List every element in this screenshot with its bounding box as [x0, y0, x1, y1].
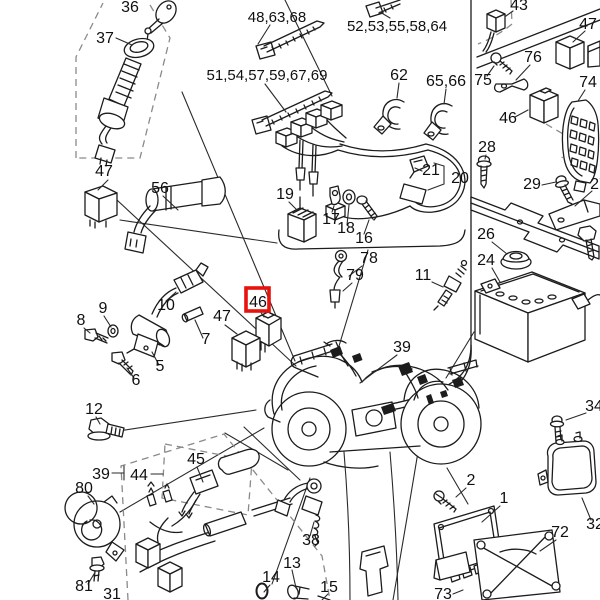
part-sketch-main-switch-37 — [95, 36, 156, 166]
callout-65-66[interactable]: 65,66 — [426, 73, 466, 90]
part-sketch-bracket-72 — [474, 530, 560, 600]
callout-29[interactable]: 29 — [523, 176, 541, 193]
part-sketch-battery-24 — [475, 272, 600, 362]
part-sketch-starter-coil-56 — [125, 177, 225, 253]
callout-46[interactable]: 46 — [249, 294, 267, 311]
callout-78[interactable]: 78 — [360, 250, 378, 267]
callout-31[interactable]: 31 — [103, 586, 121, 600]
callout-12[interactable]: 12 — [85, 401, 103, 418]
callout-48-63-68[interactable]: 48,63,68 — [248, 9, 306, 26]
part-sketch-wire-harness — [276, 101, 465, 220]
callout-76[interactable]: 76 — [524, 49, 542, 66]
part-sketch-bracket-17 — [330, 186, 340, 205]
callout-51-54-57-59-67-69[interactable]: 51,54,57,59,67,69 — [207, 67, 328, 84]
callout-37[interactable]: 37 — [96, 30, 114, 47]
callout-26[interactable]: 26 — [477, 226, 495, 243]
callout-47[interactable]: 47 — [95, 163, 113, 180]
callout-6[interactable]: 6 — [132, 372, 141, 389]
callout-56[interactable]: 56 — [151, 180, 169, 197]
callout-62[interactable]: 62 — [390, 67, 408, 84]
callout-36[interactable]: 36 — [121, 0, 139, 16]
callout-45[interactable]: 45 — [187, 451, 205, 468]
part-sketch-bolt-16 — [357, 196, 377, 220]
part-sketch-clamp-65-66 — [424, 104, 452, 140]
diagram-svg: 3637475648,63,6851,54,57,59,67,6952,53,5… — [0, 0, 600, 600]
callout-32[interactable]: 32 — [586, 516, 600, 533]
callout-21[interactable]: 21 — [422, 162, 440, 179]
part-sketch-plug-cap-10 — [174, 263, 208, 293]
part-sketch-washer-18 — [343, 190, 355, 204]
callout-16[interactable]: 16 — [355, 230, 373, 247]
parts-diagram-canvas: 3637475648,63,6851,54,57,59,67,6952,53,5… — [0, 0, 600, 600]
callout-2[interactable]: 2 — [467, 472, 476, 489]
callout-27[interactable]: 27 — [590, 176, 600, 193]
part-sketch-collar-7 — [181, 307, 203, 323]
part-sketch-starter-relay-32 — [538, 432, 596, 495]
part-sketch-grommet-26 — [501, 252, 531, 270]
part-sketch-clamp-62 — [374, 100, 404, 134]
callout-13[interactable]: 13 — [283, 555, 301, 572]
part-sketch-screw-2 — [434, 491, 456, 512]
callout-46[interactable]: 46 — [499, 110, 517, 127]
callout-74[interactable]: 74 — [579, 74, 597, 91]
part-sketch-relay-47-mid — [232, 331, 260, 371]
callout-47[interactable]: 47 — [213, 308, 231, 325]
callout-24[interactable]: 24 — [477, 252, 495, 269]
callout-20[interactable]: 20 — [451, 170, 469, 187]
part-sketch-bracket-76 — [495, 79, 528, 92]
part-sketch-connector-19 — [288, 197, 316, 242]
callout-39[interactable]: 39 — [393, 339, 411, 356]
atv-illustration — [265, 340, 481, 468]
part-sketch-relay-47-right — [556, 36, 600, 69]
callout-43[interactable]: 43 — [510, 0, 528, 14]
part-sketch-bolt-12 — [88, 418, 124, 440]
callout-14[interactable]: 14 — [262, 569, 280, 586]
callout-79[interactable]: 79 — [346, 267, 364, 284]
part-sketch-screw-29 — [555, 175, 573, 204]
callout-75[interactable]: 75 — [474, 72, 492, 89]
callout-38[interactable]: 38 — [302, 532, 320, 549]
callout-47[interactable]: 47 — [579, 16, 597, 33]
part-sketch-lead-wire-78-79 — [330, 251, 347, 309]
part-sketch-washer-9 — [108, 325, 118, 337]
callout-8[interactable]: 8 — [77, 312, 86, 329]
callout-19[interactable]: 19 — [276, 186, 294, 203]
callout-7[interactable]: 7 — [202, 331, 211, 348]
part-sketch-cable-tie-48-63-68 — [256, 21, 324, 59]
callout-9[interactable]: 9 — [99, 300, 108, 317]
part-sketch-relay-47-left — [85, 186, 117, 228]
callout-10[interactable]: 10 — [157, 297, 175, 314]
callout-18[interactable]: 18 — [337, 220, 355, 237]
callout-81[interactable]: 81 — [75, 578, 93, 595]
callout-44[interactable]: 44 — [130, 467, 148, 484]
callout-72[interactable]: 72 — [551, 524, 569, 541]
callout-5[interactable]: 5 — [156, 358, 165, 375]
part-sketch-cable-tie-52-group — [366, 0, 400, 17]
callout-73[interactable]: 73 — [434, 586, 452, 600]
part-sketch-horn-80 — [65, 492, 124, 561]
callout-15[interactable]: 15 — [320, 579, 338, 596]
callout-39[interactable]: 39 — [92, 466, 110, 483]
part-sketch-switch-13 — [286, 584, 309, 600]
callout-11[interactable]: 11 — [415, 267, 432, 284]
callout-34[interactable]: 34 — [585, 398, 600, 415]
part-sketch-plate-27 — [549, 200, 600, 230]
callout-28[interactable]: 28 — [478, 139, 496, 156]
part-sketch-screw-28 — [477, 156, 491, 188]
callout-1[interactable]: 1 — [500, 490, 509, 507]
callout-52-53-55-58-64[interactable]: 52,53,55,58,64 — [347, 18, 447, 35]
callout-80[interactable]: 80 — [75, 480, 93, 497]
